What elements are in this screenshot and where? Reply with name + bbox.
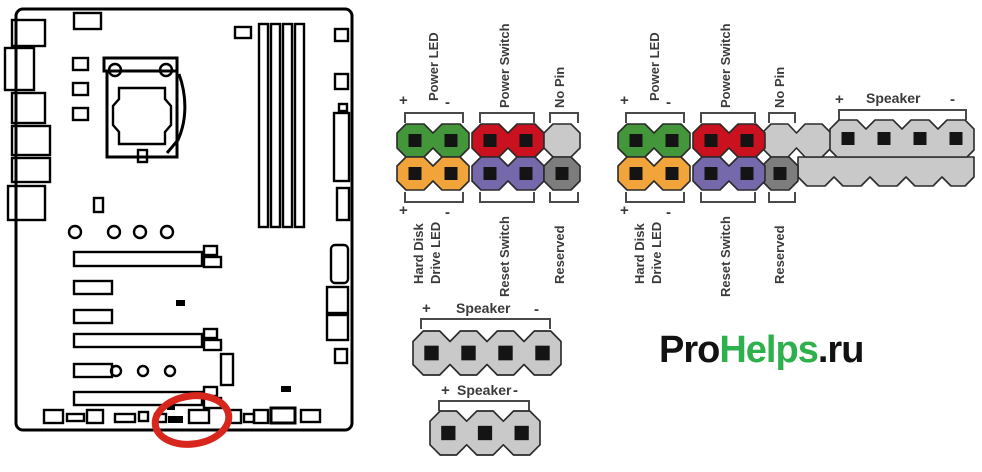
bracket-speaker [438, 400, 530, 411]
plus-sign: + [441, 384, 450, 398]
no-pin-pin [544, 124, 580, 157]
minus-sign: - [534, 303, 539, 317]
misc-components [69, 58, 291, 410]
reset-switch-pins [472, 157, 544, 190]
reset-switch-label: Reset Switch [497, 216, 512, 297]
hdd-led-pins [397, 157, 469, 190]
motherboard-diagram [0, 0, 370, 460]
bracket-hdd-led [404, 192, 464, 203]
hdd-led-pins [618, 157, 690, 190]
bracket-reserved [549, 192, 579, 203]
reset-switch-pins [693, 157, 765, 190]
brand-watermark: ProHelps.ru [659, 329, 863, 372]
minus-sign: - [666, 96, 671, 110]
bracket-power-led [404, 112, 464, 123]
power-switch-label: Power Switch [718, 23, 733, 108]
dimm-slots [259, 24, 304, 227]
speaker-strip [798, 157, 974, 186]
minus-sign: - [513, 384, 518, 398]
brand-pro: Pro [659, 329, 719, 371]
bracket-reserved [768, 192, 796, 203]
right-edge-components [327, 29, 349, 363]
hdd-led-label: Hard Disk Drive LED [631, 222, 665, 284]
plus-sign: + [399, 204, 408, 218]
power-switch-pins [693, 124, 765, 157]
speaker-label: Speaker [456, 301, 510, 316]
bracket-reset-switch [479, 192, 535, 203]
plus-sign: + [399, 94, 408, 108]
page: + - Power LED Power Switch No Pin [0, 0, 982, 472]
speaker-label: Speaker [866, 91, 920, 106]
hdd-led-label: Hard Disk Drive LED [410, 222, 444, 284]
minus-sign: - [666, 206, 671, 220]
front-panel-highlight-ellipse [152, 391, 232, 449]
no-pin-pins [762, 124, 831, 157]
no-pin-label: No Pin [772, 67, 787, 108]
reset-switch-label: Reset Switch [718, 216, 733, 297]
bottom-edge-headers [44, 408, 320, 423]
power-led-pins [397, 124, 469, 157]
io-ports [5, 20, 50, 220]
minus-sign: - [445, 206, 450, 220]
plus-sign: + [835, 93, 844, 107]
minus-sign: - [950, 93, 955, 107]
speaker-label: Speaker [457, 383, 511, 398]
power-led-pins [618, 124, 690, 157]
reserved-label: Reserved [552, 225, 567, 284]
speaker-4pin-pins [413, 331, 561, 375]
brand-helps: Helps [719, 329, 817, 371]
pin-holes [441, 426, 529, 440]
no-pin-label: No Pin [552, 67, 567, 108]
pcie-slots [74, 246, 233, 408]
top-edge-components [74, 13, 251, 38]
bracket-speaker [420, 318, 551, 329]
power-led-label: Power LED [647, 32, 662, 101]
brand-ru: .ru [818, 329, 864, 371]
bracket-power-switch [479, 112, 535, 123]
plus-sign: + [422, 302, 431, 316]
cpu-socket [104, 58, 185, 162]
plus-sign: + [620, 204, 629, 218]
plus-sign: + [620, 94, 629, 108]
bracket-no-pin [549, 112, 579, 123]
bracket-hdd-led [625, 192, 685, 203]
front-panel-pins-right [618, 116, 978, 192]
minus-sign: - [445, 96, 450, 110]
reserved-label: Reserved [772, 225, 787, 284]
speaker-3pin-pins [430, 411, 540, 455]
bracket-reset-switch [700, 192, 756, 203]
power-led-label: Power LED [426, 32, 441, 101]
power-switch-pins [472, 124, 544, 157]
motherboard-outline [16, 9, 352, 430]
power-switch-label: Power Switch [497, 23, 512, 108]
front-panel-pins-left [397, 124, 583, 191]
